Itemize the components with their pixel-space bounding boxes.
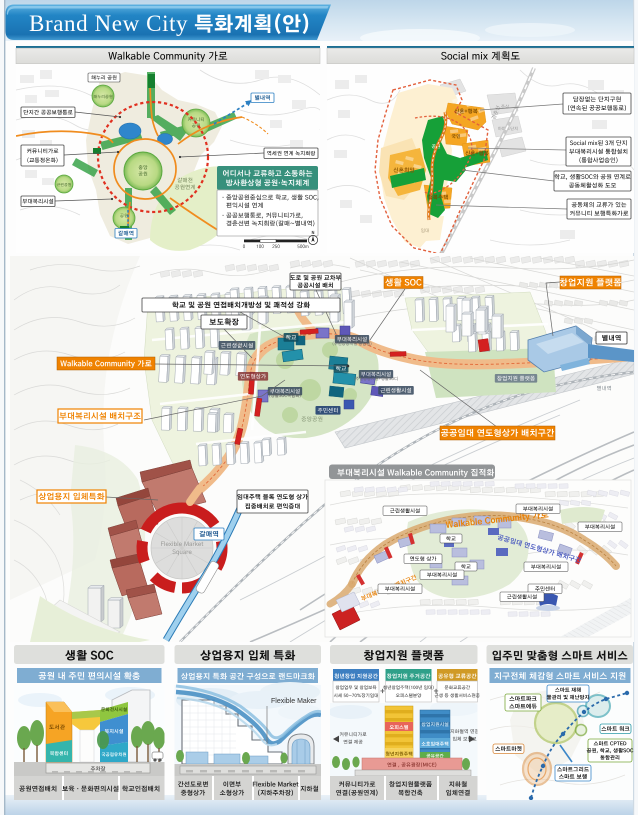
- svg-text:Brand New City: Brand New City: [29, 11, 188, 36]
- svg-text:Flexible Maker: Flexible Maker: [271, 698, 317, 705]
